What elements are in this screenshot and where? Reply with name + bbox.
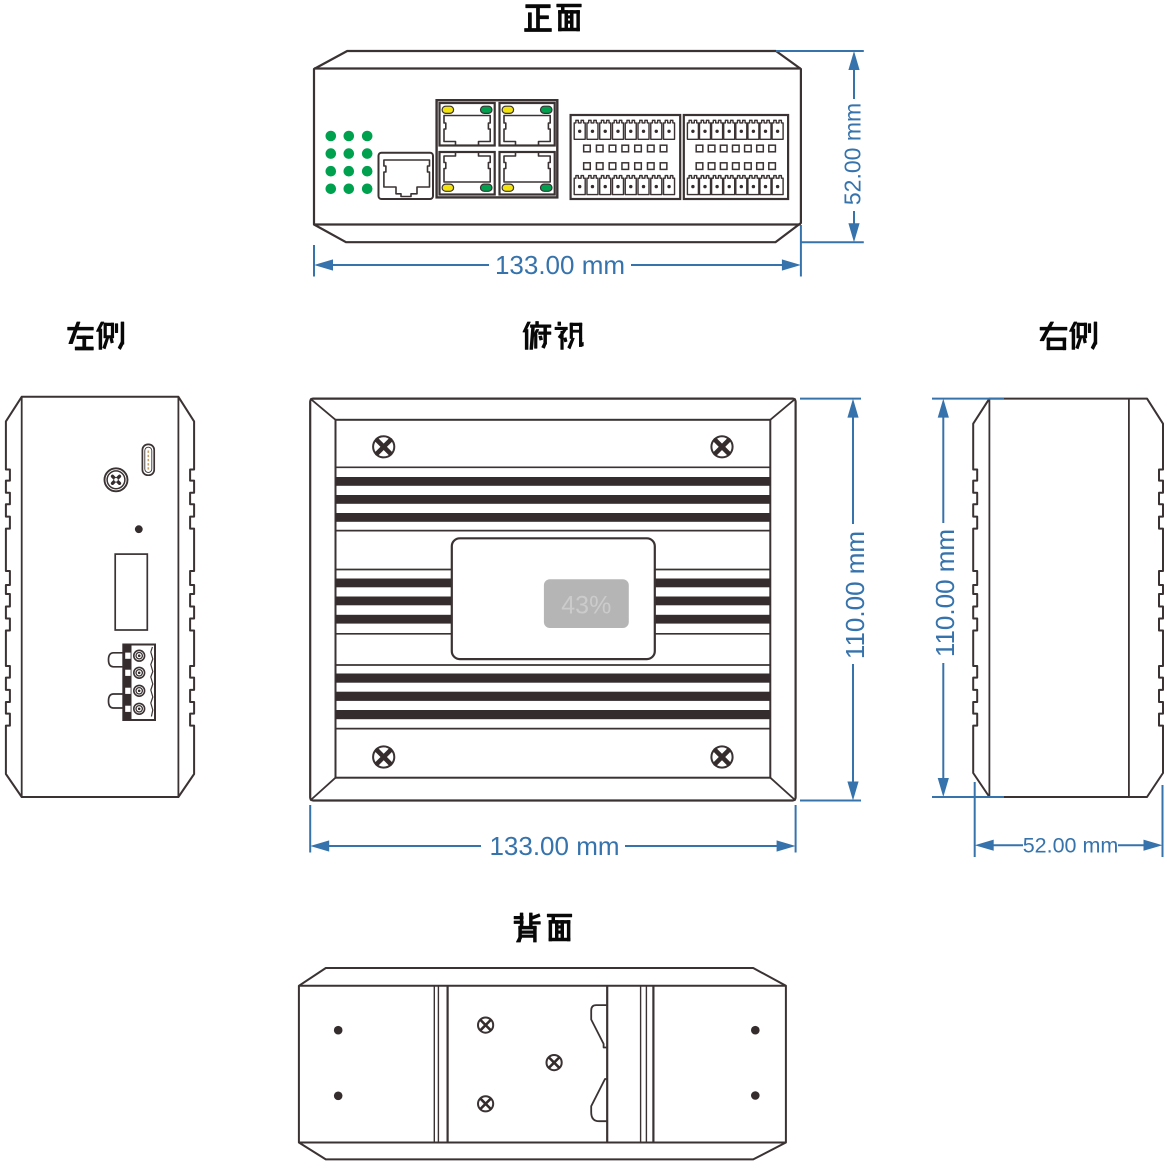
svg-text:110.00 mm: 110.00 mm [930, 529, 960, 657]
svg-text:43%: 43% [561, 592, 611, 620]
svg-text:52.00 mm: 52.00 mm [1023, 834, 1119, 858]
svg-text:133.00 mm: 133.00 mm [489, 831, 619, 861]
svg-text:110.00 mm: 110.00 mm [840, 531, 870, 659]
svg-text:133.00 mm: 133.00 mm [495, 250, 625, 280]
svg-text:52.00 mm: 52.00 mm [840, 103, 866, 205]
